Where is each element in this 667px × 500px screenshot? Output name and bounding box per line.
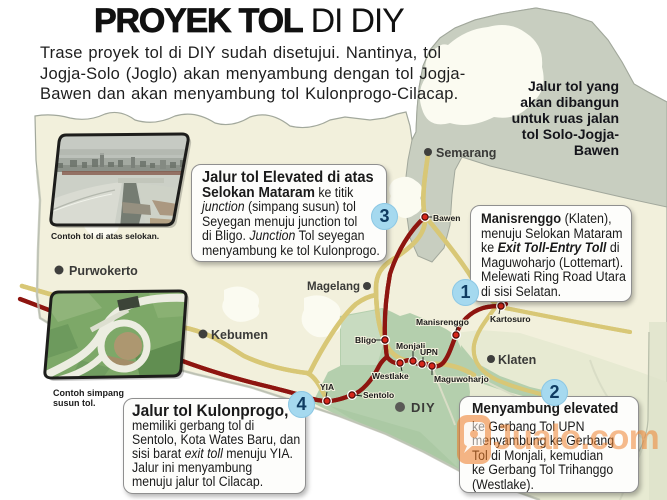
svg-text:Contoh simpang: Contoh simpang [53,388,124,398]
svg-text:Magelang: Magelang [307,281,360,293]
svg-text:Bligo: Bligo [355,335,376,345]
svg-text:Maguwoharjo: Maguwoharjo [434,374,489,384]
svg-text:Bawen: Bawen [433,213,460,223]
svg-text:susun tol.: susun tol. [53,398,96,408]
svg-text:UPN: UPN [420,347,438,357]
svg-text:Sentolo: Sentolo [363,390,394,400]
svg-text:Jualo.com: Jualo.com [493,418,659,457]
svg-text:Purwokerto: Purwokerto [69,264,138,278]
svg-text:Contoh tol di atas selokan.: Contoh tol di atas selokan. [51,231,159,241]
svg-text:Kartosuro: Kartosuro [490,314,531,324]
svg-text:Manisrenggo: Manisrenggo [416,317,469,327]
svg-text:Klaten: Klaten [498,353,536,367]
svg-text:Kebumen: Kebumen [211,328,268,342]
svg-text:Westlake: Westlake [372,371,409,381]
svg-text:DIY: DIY [411,400,436,415]
svg-text:YIA: YIA [320,382,334,392]
